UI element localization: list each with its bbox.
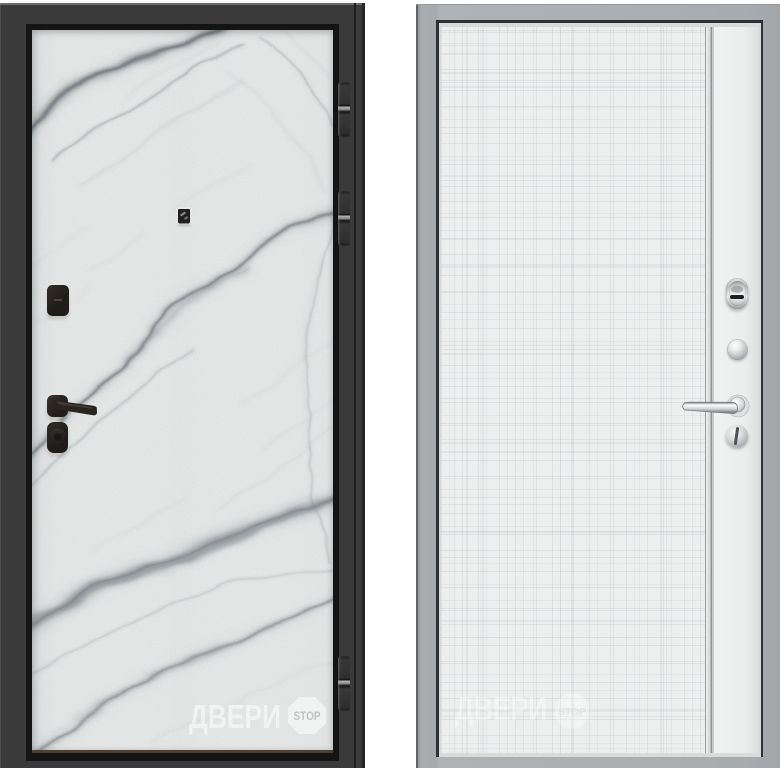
svg-text:STOP: STOP [558,707,586,718]
svg-text:STOP: STOP [294,711,321,723]
